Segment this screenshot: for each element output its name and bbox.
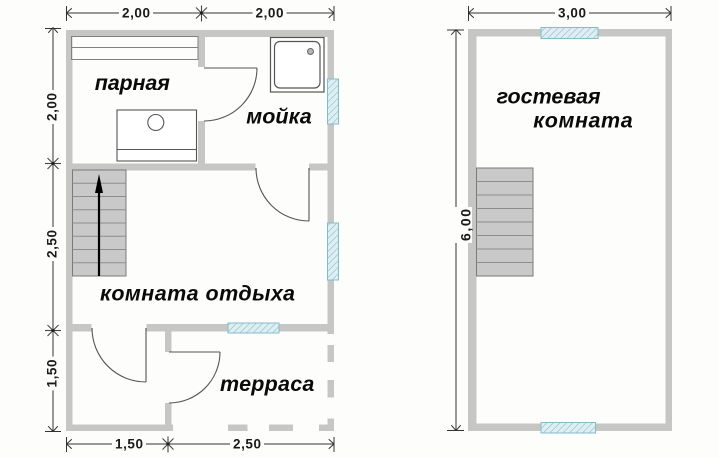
svg-text:2,00: 2,00 (45, 93, 60, 121)
svg-text:3,00: 3,00 (558, 6, 586, 21)
svg-text:2,50: 2,50 (233, 437, 261, 452)
svg-text:комната отдыха: комната отдыха (100, 282, 295, 306)
svg-text:комната: комната (533, 108, 632, 132)
svg-text:2,00: 2,00 (122, 6, 150, 21)
svg-text:парная: парная (95, 71, 171, 95)
svg-text:2,50: 2,50 (45, 230, 60, 258)
svg-text:6,00: 6,00 (458, 209, 474, 241)
svg-text:мойка: мойка (246, 105, 312, 129)
svg-text:терраса: терраса (220, 372, 314, 396)
svg-text:1,50: 1,50 (115, 437, 143, 452)
svg-text:1,50: 1,50 (45, 360, 60, 388)
svg-text:гостевая: гостевая (497, 85, 601, 109)
svg-text:2,00: 2,00 (256, 6, 284, 21)
